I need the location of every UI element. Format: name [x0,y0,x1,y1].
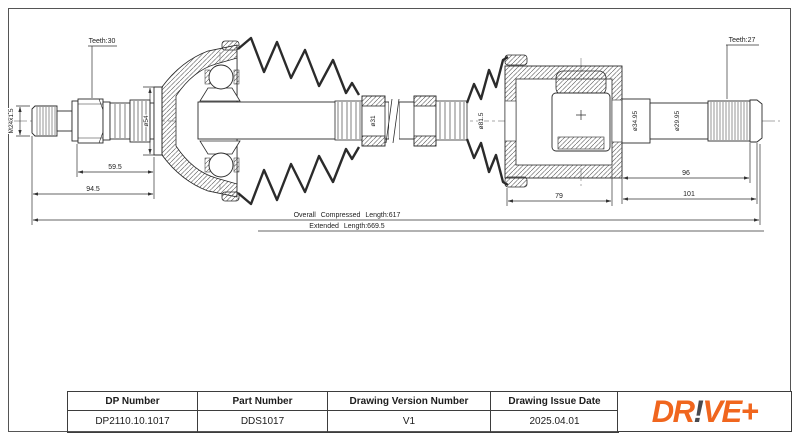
logo-exclamation: ! [693,394,702,430]
header-drawing-version: Drawing Version Number [328,392,491,411]
logo-text-dr: DR [652,394,694,430]
label-teeth-outer: Teeth:30 [89,38,116,45]
axle-shaft [198,98,436,143]
dim-compressed-length: Overall Compressed Length:617 [294,212,401,219]
ball-cage-segment [234,70,239,84]
dim-extended-length: Extended Length:669.5 [309,223,385,230]
brand-logo-cell: DR!VE+ [617,391,792,432]
value-issue-date: 2025.04.01 [491,411,619,433]
inner-stub-shaft [622,99,762,143]
header-part-number: Part Number [198,392,328,411]
drawing-sheet: Teeth:30 Teeth:27 M24x1.5 ø54 ø31 ø81.5 … [0,0,800,436]
value-drawing-version: V1 [328,411,491,433]
label-dia-joint: ø34.95 [632,111,639,132]
brand-logo: DR!VE+ [652,396,758,428]
inner-boot-clamps [414,96,467,146]
label-teeth-inner: Teeth:27 [729,37,756,44]
value-dp-number: DP2110.10.1017 [68,411,198,433]
tripod-cap [556,71,606,95]
header-issue-date: Drawing Issue Date [491,392,619,411]
header-dp-number: DP Number [68,392,198,411]
axle-technical-drawing: Teeth:30 Teeth:27 M24x1.5 ø54 ø31 ø81.5 … [0,0,800,436]
bearing-ball [209,65,233,89]
logo-text-ve-plus: VE+ [702,394,757,430]
label-dia-stem: ø54 [143,115,150,127]
title-block: DP Number Part Number Drawing Version Nu… [67,391,619,433]
dim-outer-stub-length: 94.5 [86,186,100,193]
label-dia-boot: ø81.5 [478,112,485,129]
dim-spline-length: 59.5 [108,164,122,171]
dim-stub-overall: 101 [683,191,695,198]
title-block-header-row: DP Number Part Number Drawing Version Nu… [68,392,619,411]
dim-inner-joint-length: 79 [555,193,563,200]
dim-stub-length: 96 [682,170,690,177]
inner-joint-housing [505,66,622,178]
ball-cage-segment [234,158,239,172]
bearing-ball [209,153,233,177]
value-part-number: DDS1017 [198,411,328,433]
label-thread-spec: M24x1.5 [8,108,15,133]
label-dia-stub: ø29.95 [674,111,681,132]
title-block-value-row: DP2110.10.1017 DDS1017 V1 2025.04.01 [68,411,619,433]
label-dia-shaft: ø31 [370,115,377,127]
